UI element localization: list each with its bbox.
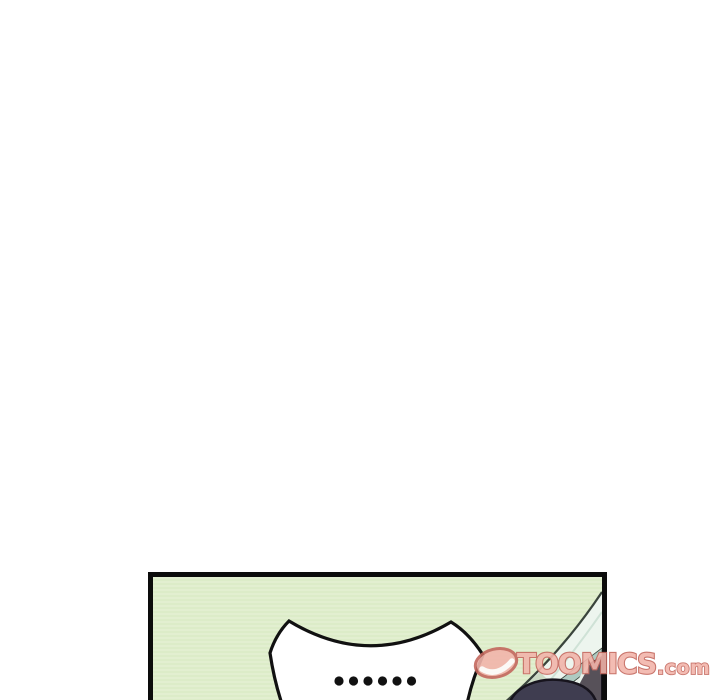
dialogue-dot	[349, 676, 358, 685]
webtoon-page: TOOMICS .com	[0, 0, 720, 700]
watermark-brand-text: TOOMICS	[517, 647, 656, 680]
dialogue-dot	[392, 676, 401, 685]
dialogue-dot	[334, 676, 343, 685]
watermark-domain-text: .com	[657, 657, 710, 679]
dialogue-dot	[378, 676, 387, 685]
dialogue-dot	[363, 676, 372, 685]
dialogue-dot	[407, 676, 416, 685]
comic-panel-svg: TOOMICS .com	[0, 0, 720, 700]
